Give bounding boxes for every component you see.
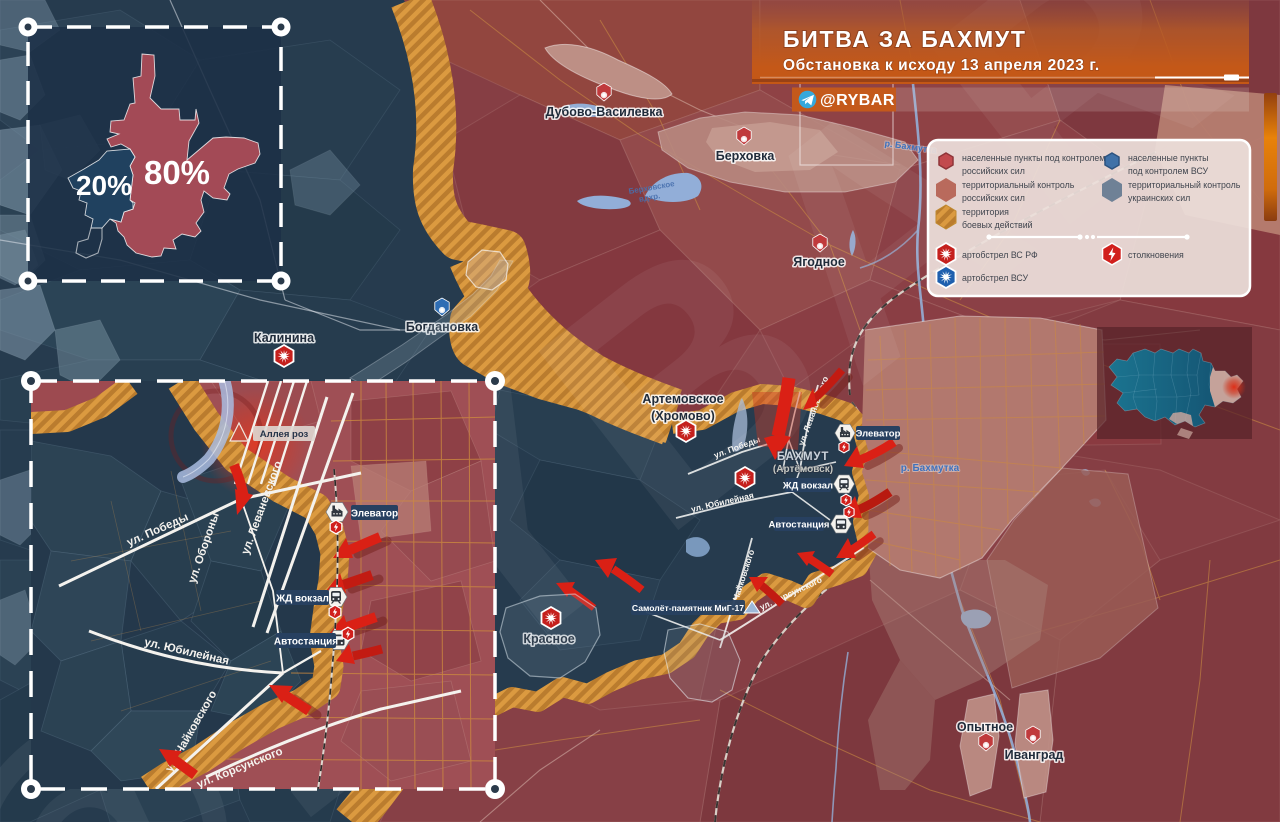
svg-text:Автостанция: Автостанция bbox=[274, 637, 338, 648]
svg-text:@RYBAR: @RYBAR bbox=[820, 92, 895, 109]
svg-text:артобстрел ВС РФ: артобстрел ВС РФ bbox=[962, 250, 1038, 260]
svg-text:ЖД вокзал: ЖД вокзал bbox=[782, 481, 833, 492]
svg-text:Самолёт-памятник МиГ-17: Самолёт-памятник МиГ-17 bbox=[632, 603, 744, 613]
svg-text:украинских сил: украинских сил bbox=[1128, 193, 1190, 203]
svg-text:российских сил: российских сил bbox=[962, 166, 1025, 176]
svg-text:Берховка: Берховка bbox=[716, 149, 776, 163]
svg-text:территориальный контроль: территориальный контроль bbox=[1128, 180, 1241, 190]
svg-text:Артемовское: Артемовское bbox=[642, 392, 723, 406]
svg-text:р. Бахмутка: р. Бахмутка bbox=[901, 463, 960, 474]
svg-text:Аллея роз: Аллея роз bbox=[260, 429, 309, 440]
svg-text:столкновения: столкновения bbox=[1128, 250, 1184, 260]
svg-text:территориальный контроль: территориальный контроль bbox=[962, 180, 1075, 190]
svg-text:(Артёмовск): (Артёмовск) bbox=[773, 464, 833, 475]
svg-text:артобстрел ВСУ: артобстрел ВСУ bbox=[962, 273, 1028, 283]
svg-text:Калинина: Калинина bbox=[254, 331, 315, 345]
svg-text:Обстановка к исходу 13 апреля: Обстановка к исходу 13 апреля 2023 г. bbox=[783, 57, 1100, 74]
svg-text:20%: 20% bbox=[76, 170, 132, 201]
svg-text:Элеватор: Элеватор bbox=[856, 429, 901, 440]
svg-text:Иванград: Иванград bbox=[1005, 748, 1064, 762]
svg-text:населенные пункты: населенные пункты bbox=[1128, 153, 1208, 163]
svg-text:БИТВА ЗА БАХМУТ: БИТВА ЗА БАХМУТ bbox=[783, 26, 1027, 52]
svg-text:территория: территория bbox=[962, 207, 1009, 217]
svg-text:ЖД вокзал: ЖД вокзал bbox=[275, 594, 329, 605]
svg-text:БАХМУТ: БАХМУТ bbox=[777, 451, 829, 463]
svg-text:Элеватор: Элеватор bbox=[351, 509, 398, 520]
svg-text:80%: 80% bbox=[144, 154, 210, 191]
svg-text:боевых действий: боевых действий bbox=[962, 220, 1033, 230]
svg-text:Автостанция: Автостанция bbox=[769, 520, 830, 531]
svg-text:Дубово-Василевка: Дубово-Василевка bbox=[546, 105, 664, 119]
svg-text:Опытное: Опытное bbox=[957, 720, 1013, 734]
svg-text:Ягодное: Ягодное bbox=[793, 255, 845, 269]
svg-text:российских сил: российских сил bbox=[962, 193, 1025, 203]
svg-text:населенные пункты под контроле: населенные пункты под контролем bbox=[962, 153, 1105, 163]
svg-text:под контролем ВСУ: под контролем ВСУ bbox=[1128, 166, 1209, 176]
